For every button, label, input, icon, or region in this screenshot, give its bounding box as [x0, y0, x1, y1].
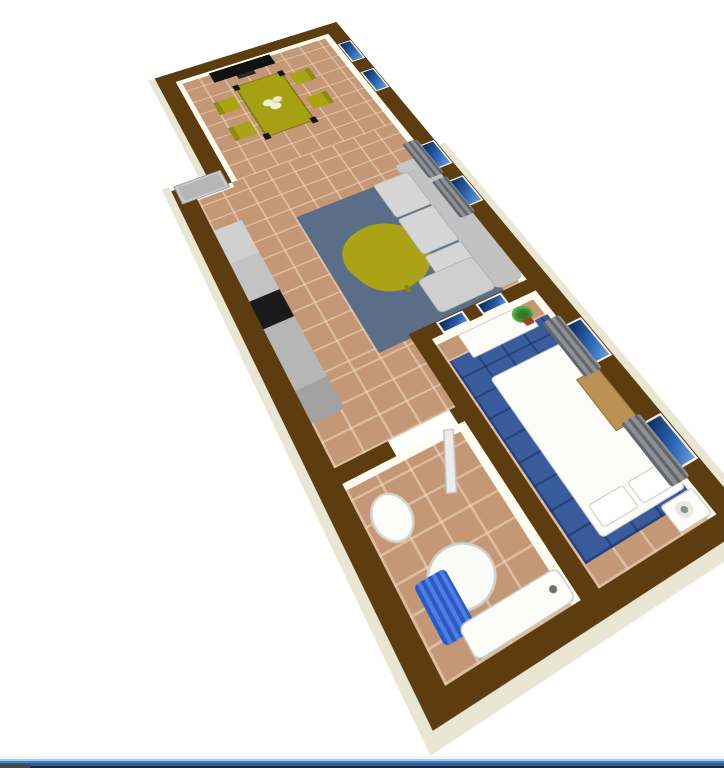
taskbar-edge[interactable] [0, 756, 724, 768]
app-canvas [0, 0, 724, 768]
apartment-plan [104, 9, 724, 747]
3d-viewport[interactable] [0, 0, 724, 768]
taskbar-corner-chip [0, 764, 30, 768]
place-setting [259, 94, 289, 113]
